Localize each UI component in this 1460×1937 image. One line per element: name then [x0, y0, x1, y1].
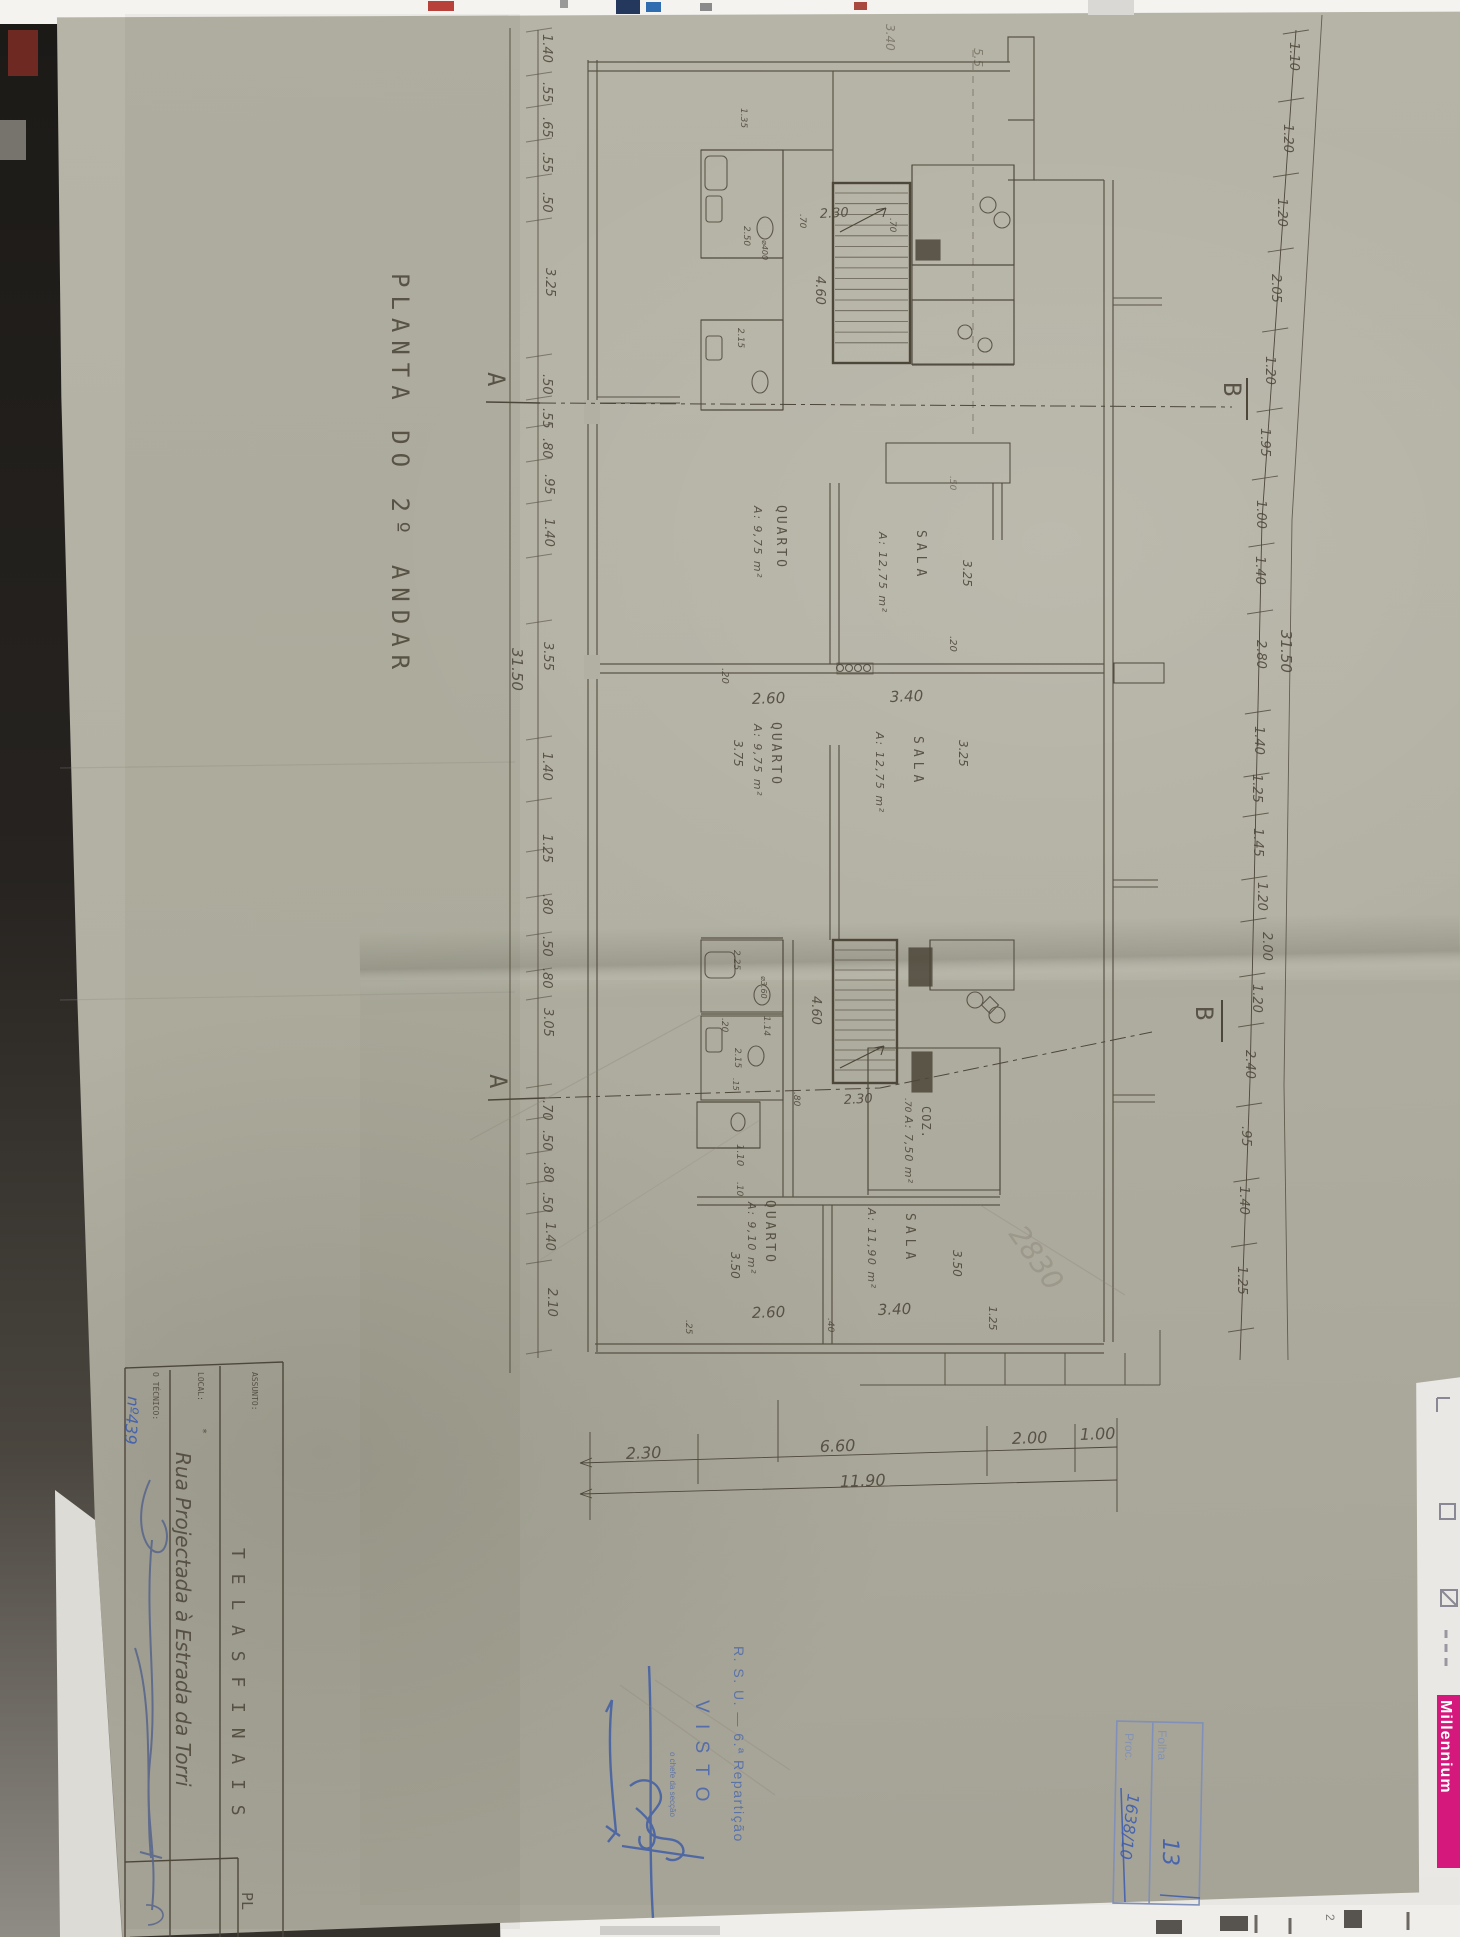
dim-right: 1.25	[1234, 1266, 1249, 1295]
dim-mid: 2.60	[752, 689, 786, 708]
dim-right: 1.40	[1252, 556, 1267, 585]
stamp-visto: V I S T O	[691, 1700, 712, 1804]
dim-bottom: 1.00	[1079, 1424, 1115, 1444]
dim-mid: 3.75	[731, 740, 745, 767]
room-area-sala-3: A: 11,90 m²	[865, 1207, 878, 1290]
dim-left: 3.55	[540, 642, 555, 671]
titleblock-corner: PL	[238, 1892, 256, 1910]
dim-left: 1.40	[539, 752, 554, 781]
dim-stair-2b: 4.60	[808, 996, 823, 1025]
section-marker-a2: A	[484, 1074, 512, 1089]
dim-left: .80	[539, 968, 554, 989]
dim-left: 1.25	[539, 834, 554, 863]
titleblock-tecnico-number: nº439	[121, 1396, 143, 1445]
section-marker-b2: B	[1190, 1006, 1218, 1020]
dim-right: 1.20	[1249, 984, 1264, 1013]
titleblock-local-value: Rua Projectada à Estrada da Torri	[171, 1452, 195, 1787]
dim-mid: 3.25	[960, 560, 974, 587]
dim-mid: .50	[947, 476, 957, 491]
edge-banner: Millennium	[1437, 1700, 1454, 1794]
dim-left: .55	[539, 152, 554, 173]
dim-left: 3.05	[540, 1008, 555, 1037]
photo-top-edge-fragments	[428, 0, 1134, 15]
photo-left-edge-fragments	[0, 30, 122, 1937]
dim-left: .50	[539, 1192, 554, 1213]
dim-left: 2.10	[544, 1288, 559, 1317]
room-label-quarto-3: QUARTO	[762, 1200, 777, 1265]
room-label-quarto-2: QUARTO	[768, 722, 783, 787]
dim-right: 1.40	[1251, 726, 1266, 755]
dim-bottom: 2.00	[1011, 1428, 1047, 1448]
dim-right: 1.10	[1286, 42, 1301, 71]
dim-bottom: 2.30	[625, 1443, 661, 1463]
photo-bottom-edge-marks	[600, 1910, 1408, 1935]
dim-low: .40	[825, 1318, 835, 1333]
drawing-title: PLANTA DO 2º ANDAR	[386, 273, 414, 677]
titleblock-local-label: LOCAL:	[196, 1372, 205, 1401]
room-area-quarto-1: A: 9,75 m²	[751, 505, 764, 579]
dim-left: .50	[539, 936, 554, 957]
dim-stair-2: 2.30	[843, 1091, 873, 1107]
process-box-proc-label: Proc.	[1122, 1733, 1136, 1761]
section-marker-a1: A	[482, 372, 510, 387]
dim-bath: 2.15	[732, 1048, 742, 1068]
dim-mid: 3.25	[956, 740, 970, 767]
dim-right: 2.05	[1268, 274, 1283, 303]
dim-bath: 1.35	[738, 108, 748, 128]
dim-left: .70	[539, 1100, 554, 1121]
dim-bath: .15	[731, 1078, 740, 1091]
dim-bath: 2.50	[741, 226, 751, 246]
dim-stair-1: 2.30	[819, 205, 849, 221]
room-area-sala-2: A: 12,75 m²	[873, 731, 886, 814]
dim-bath: .20	[719, 1018, 729, 1033]
dim-right: 1.95	[1257, 428, 1272, 457]
dim-bottom: 6.60	[819, 1436, 855, 1456]
dim-low: 3.50	[950, 1250, 964, 1277]
dim-top: 5.5	[971, 48, 985, 67]
titleblock-local-mark: *	[197, 1428, 208, 1434]
titleblock-assunto-value: T E L A S F I N A I S	[227, 1548, 248, 1818]
dim-right: 1.20	[1280, 124, 1295, 153]
dim-stair-2d: .80	[791, 1092, 801, 1107]
dim-right: 1.45	[1250, 828, 1265, 857]
dim-low: .25	[683, 1320, 693, 1335]
dim-mid: .20	[947, 636, 958, 652]
process-box-folha-value: 13	[1157, 1838, 1182, 1866]
dim-right: 1.00	[1253, 500, 1268, 529]
dim-bath: 2.15	[735, 328, 745, 348]
dim-left: 3.25	[542, 268, 557, 297]
dim-bottom-total: 11.90	[839, 1470, 885, 1491]
stamp-rsu: R. S. U. — 6.ª Repartição	[731, 1646, 747, 1843]
dim-right: 2.00	[1259, 932, 1274, 961]
process-box-folha-label: Folha	[1155, 1730, 1169, 1760]
stamp-chefe: o chefe da secção	[668, 1752, 677, 1817]
room-area-sala-1: A: 12,75 m²	[876, 531, 889, 614]
dim-stair-2c: .70	[902, 1098, 912, 1113]
dim-bath: .10	[734, 1182, 744, 1197]
dim-right: 1.25	[1249, 774, 1264, 803]
dim-left: .80	[539, 438, 554, 459]
dim-right: .95	[1238, 1126, 1253, 1147]
dim-right: 1.20	[1262, 356, 1277, 385]
room-label-coz: COZ.	[919, 1106, 933, 1139]
door-gap	[584, 655, 600, 679]
dim-left: .55	[539, 408, 554, 429]
room-area-coz: A: 7,50 m²	[902, 1115, 915, 1184]
dim-right: 2.40	[1242, 1050, 1257, 1079]
dim-mid: 3.40	[890, 687, 924, 706]
dim-right-total: 31.50	[1277, 630, 1295, 673]
dim-left: .50	[539, 1130, 554, 1151]
dim-left-total: 31.50	[508, 648, 526, 691]
dim-stair-1b: 4.60	[812, 276, 827, 305]
dim-bath: ⌀400	[760, 240, 769, 260]
floor-plan-drawing: PLANTA DO 2º ANDAR1.40.55.65.55.503.25.5…	[0, 0, 1460, 1937]
dim-left: .55	[539, 82, 554, 103]
dim-low: 1.25	[986, 1306, 999, 1331]
room-area-quarto-3: A: 9,10 m²	[745, 1201, 758, 1275]
dim-low: 3.40	[878, 1300, 912, 1319]
room-area-quarto-2: A: 9,75 m²	[751, 723, 764, 797]
dim-top: 3.40	[883, 24, 897, 51]
dim-low: 3.50	[728, 1252, 742, 1279]
dim-left: 1.40	[542, 1222, 557, 1251]
dim-bath: 1.10	[734, 1144, 745, 1166]
room-label-quarto-1: QUARTO	[773, 505, 788, 570]
section-marker-b1: B	[1218, 382, 1246, 396]
dim-left: .65	[539, 117, 554, 138]
dim-mid: .20	[719, 668, 730, 684]
room-label-sala-1: SALA	[913, 530, 928, 581]
dim-left: 1.40	[541, 518, 556, 547]
titleblock-tecnico-label: O TÉCNICO:	[151, 1372, 162, 1420]
dim-bath: 2.25	[731, 950, 741, 970]
room-label-sala-3: SALA	[902, 1213, 917, 1264]
dim-left: .80	[540, 1162, 555, 1183]
dim-bath: ⌀3.60	[759, 976, 768, 999]
dim-left: .50	[539, 374, 554, 395]
edge-mark: 2	[1323, 1914, 1337, 1921]
dim-stair-1c: .70	[797, 214, 807, 229]
dim-left: 1.40	[539, 34, 554, 63]
titleblock-assunto-label: ASSUNTO:	[250, 1372, 259, 1411]
dim-right: 2.80	[1253, 640, 1268, 669]
room-label-sala-2: SALA	[910, 736, 925, 787]
dim-left: .50	[539, 192, 554, 213]
dim-right: 1.20	[1274, 198, 1289, 227]
dim-left: .95	[541, 474, 556, 495]
photographed-blueprint: PLANTA DO 2º ANDAR1.40.55.65.55.503.25.5…	[0, 0, 1460, 1937]
dim-left: .80	[539, 894, 554, 915]
dim-low: 2.60	[752, 1303, 786, 1322]
dim-right: 1.40	[1236, 1186, 1251, 1215]
dim-bath: 1.14	[761, 1016, 771, 1036]
dim-right: 1.20	[1254, 882, 1269, 911]
dim-stair-1d: .70	[887, 218, 897, 233]
